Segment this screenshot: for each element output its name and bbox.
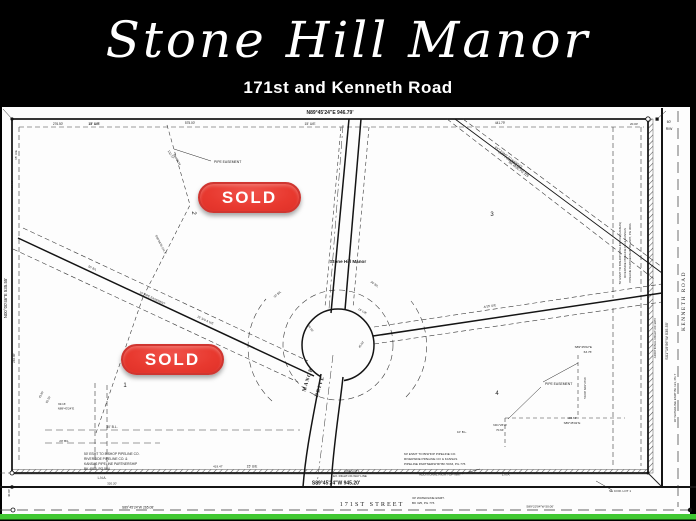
plat-label: 50' ESMT TO BISHOP PIPELINE CO. — [84, 452, 140, 456]
plat-label: 10' B.L. — [457, 430, 467, 434]
plat-label: 20.00' — [630, 122, 639, 126]
plat-label: PIPE EASEMENT — [545, 382, 572, 386]
plat-label: 20' B/L — [59, 439, 69, 443]
plat-label: 135.56' — [10, 180, 14, 190]
plat-label: 30' WATERLINE ESMT. — [412, 496, 445, 500]
plat-label: 30' WATERLINE ESMT BK 123, PG 7 — [673, 373, 677, 422]
plat-label: RIVERSIDE PIPELINE CO & KANSAS — [404, 457, 457, 461]
plat-label: N00°00'46"E 535.55' — [3, 278, 8, 319]
plat-label: S01°19'56"W 535.55' — [664, 322, 669, 360]
plat-label: 320.20' — [107, 482, 117, 486]
plat-label: 50.00' N01°26'W — [583, 377, 587, 399]
plat-label: 70.64' — [496, 428, 505, 432]
plat-label: 63.76' — [584, 350, 593, 354]
plat-label: RIVERSIDE PIPELINE CO. & — [84, 457, 128, 461]
plat-label: RIVERSIDE PIPELINE CO & KANSAS — [623, 228, 627, 278]
plat-label: 15' U/E — [304, 122, 316, 126]
plat-label: R/W — [666, 127, 673, 131]
sold-badge: SOLD — [198, 182, 301, 213]
plat-label: 99.16' — [58, 402, 66, 406]
plat-label: KANSAS PIPELINE PARTNERSHIP — [84, 462, 138, 466]
plat-label: 441.79' — [495, 121, 506, 125]
plat-label: L.N.A. — [98, 476, 107, 480]
plat-label: KENNETH ROAD — [681, 271, 687, 331]
plat-label: 240.00' — [12, 353, 16, 363]
page-subtitle: 171st and Kenneth Road — [243, 78, 452, 98]
plat-label: 40.00' — [7, 489, 11, 498]
plat-label: 419.47' — [213, 465, 223, 469]
plat-survey-drawing: N89°45'24"E 946.79'276.50'15' U/E575.00'… — [0, 103, 696, 521]
plat-label: L.N.A. — [502, 473, 511, 477]
plat-label: PIPE EASEMENT — [214, 160, 241, 164]
plat-label: N89°45'24"E 946.79' — [306, 110, 353, 116]
plat-label: ADDITIONAL RIGHT-OF-WAY — [653, 318, 657, 359]
plat-label: 15' U/E — [88, 122, 100, 126]
plat-label: S89°45'24"W 945.20' — [312, 481, 360, 487]
sold-badge: SOLD — [121, 344, 224, 375]
plat-label: 106.63' — [567, 416, 577, 420]
flyer: Stone Hill Manor 171st and Kenneth Road — [0, 0, 696, 521]
green-accent-strip — [0, 514, 696, 520]
plat-label: 60' — [667, 120, 672, 124]
plat-label: N01°26'W — [493, 423, 507, 427]
plat-label: ADDITIONAL RIGHT-OF-WAY — [419, 473, 461, 477]
flyer-header: Stone Hill Manor 171st and Kenneth Road — [0, 0, 696, 107]
plat-label: Stone Hill Manor — [330, 259, 366, 264]
plat-label: 15' U/E — [247, 465, 259, 469]
plat-label: BK 4585, PG 584 — [84, 467, 110, 471]
plat-label: 60' ESMT TO BISHOP PIPELINE CO. — [404, 452, 456, 456]
plat-label: S89°23'04"W 50.00' — [526, 505, 554, 509]
plat-label: 15' U/E — [14, 150, 18, 160]
plat-label: 276.50' — [53, 122, 64, 126]
plat-label: SE COR. LOT 1 — [609, 489, 631, 493]
plat-label: 30' B.L. — [106, 425, 117, 429]
plat-label: PIPELINE PARTNERSHIP BK 2987, PG 300A — [628, 223, 632, 282]
plat-label: S89°45'24"W 265.08' — [122, 506, 154, 510]
plat-label: 171ST STREET — [340, 501, 405, 508]
page-title: Stone Hill Manor — [106, 4, 591, 76]
plat-label: BK 325, PG 776 — [412, 501, 435, 505]
plat-label: N89°43'24"E — [58, 407, 74, 411]
plat-label: 575.00' — [185, 121, 196, 125]
plat-label: S89°45'02"E — [564, 421, 581, 425]
plat-label: LINE LOT 1 — [344, 469, 360, 473]
plat-label: S89°45'02"E — [575, 345, 592, 349]
plat-label: PIPELINE PARTNERSHIP BK 5033, PG 776 — [404, 462, 466, 466]
plat-map: N89°45'24"E 946.79'276.50'15' U/E575.00'… — [0, 103, 696, 521]
plat-label: 50' ESMT TO BISHOP PIPELINE CO (KANSAS) — [618, 222, 622, 284]
plat-label: EX. RIGHT-OF-WAY LINE — [333, 474, 367, 478]
